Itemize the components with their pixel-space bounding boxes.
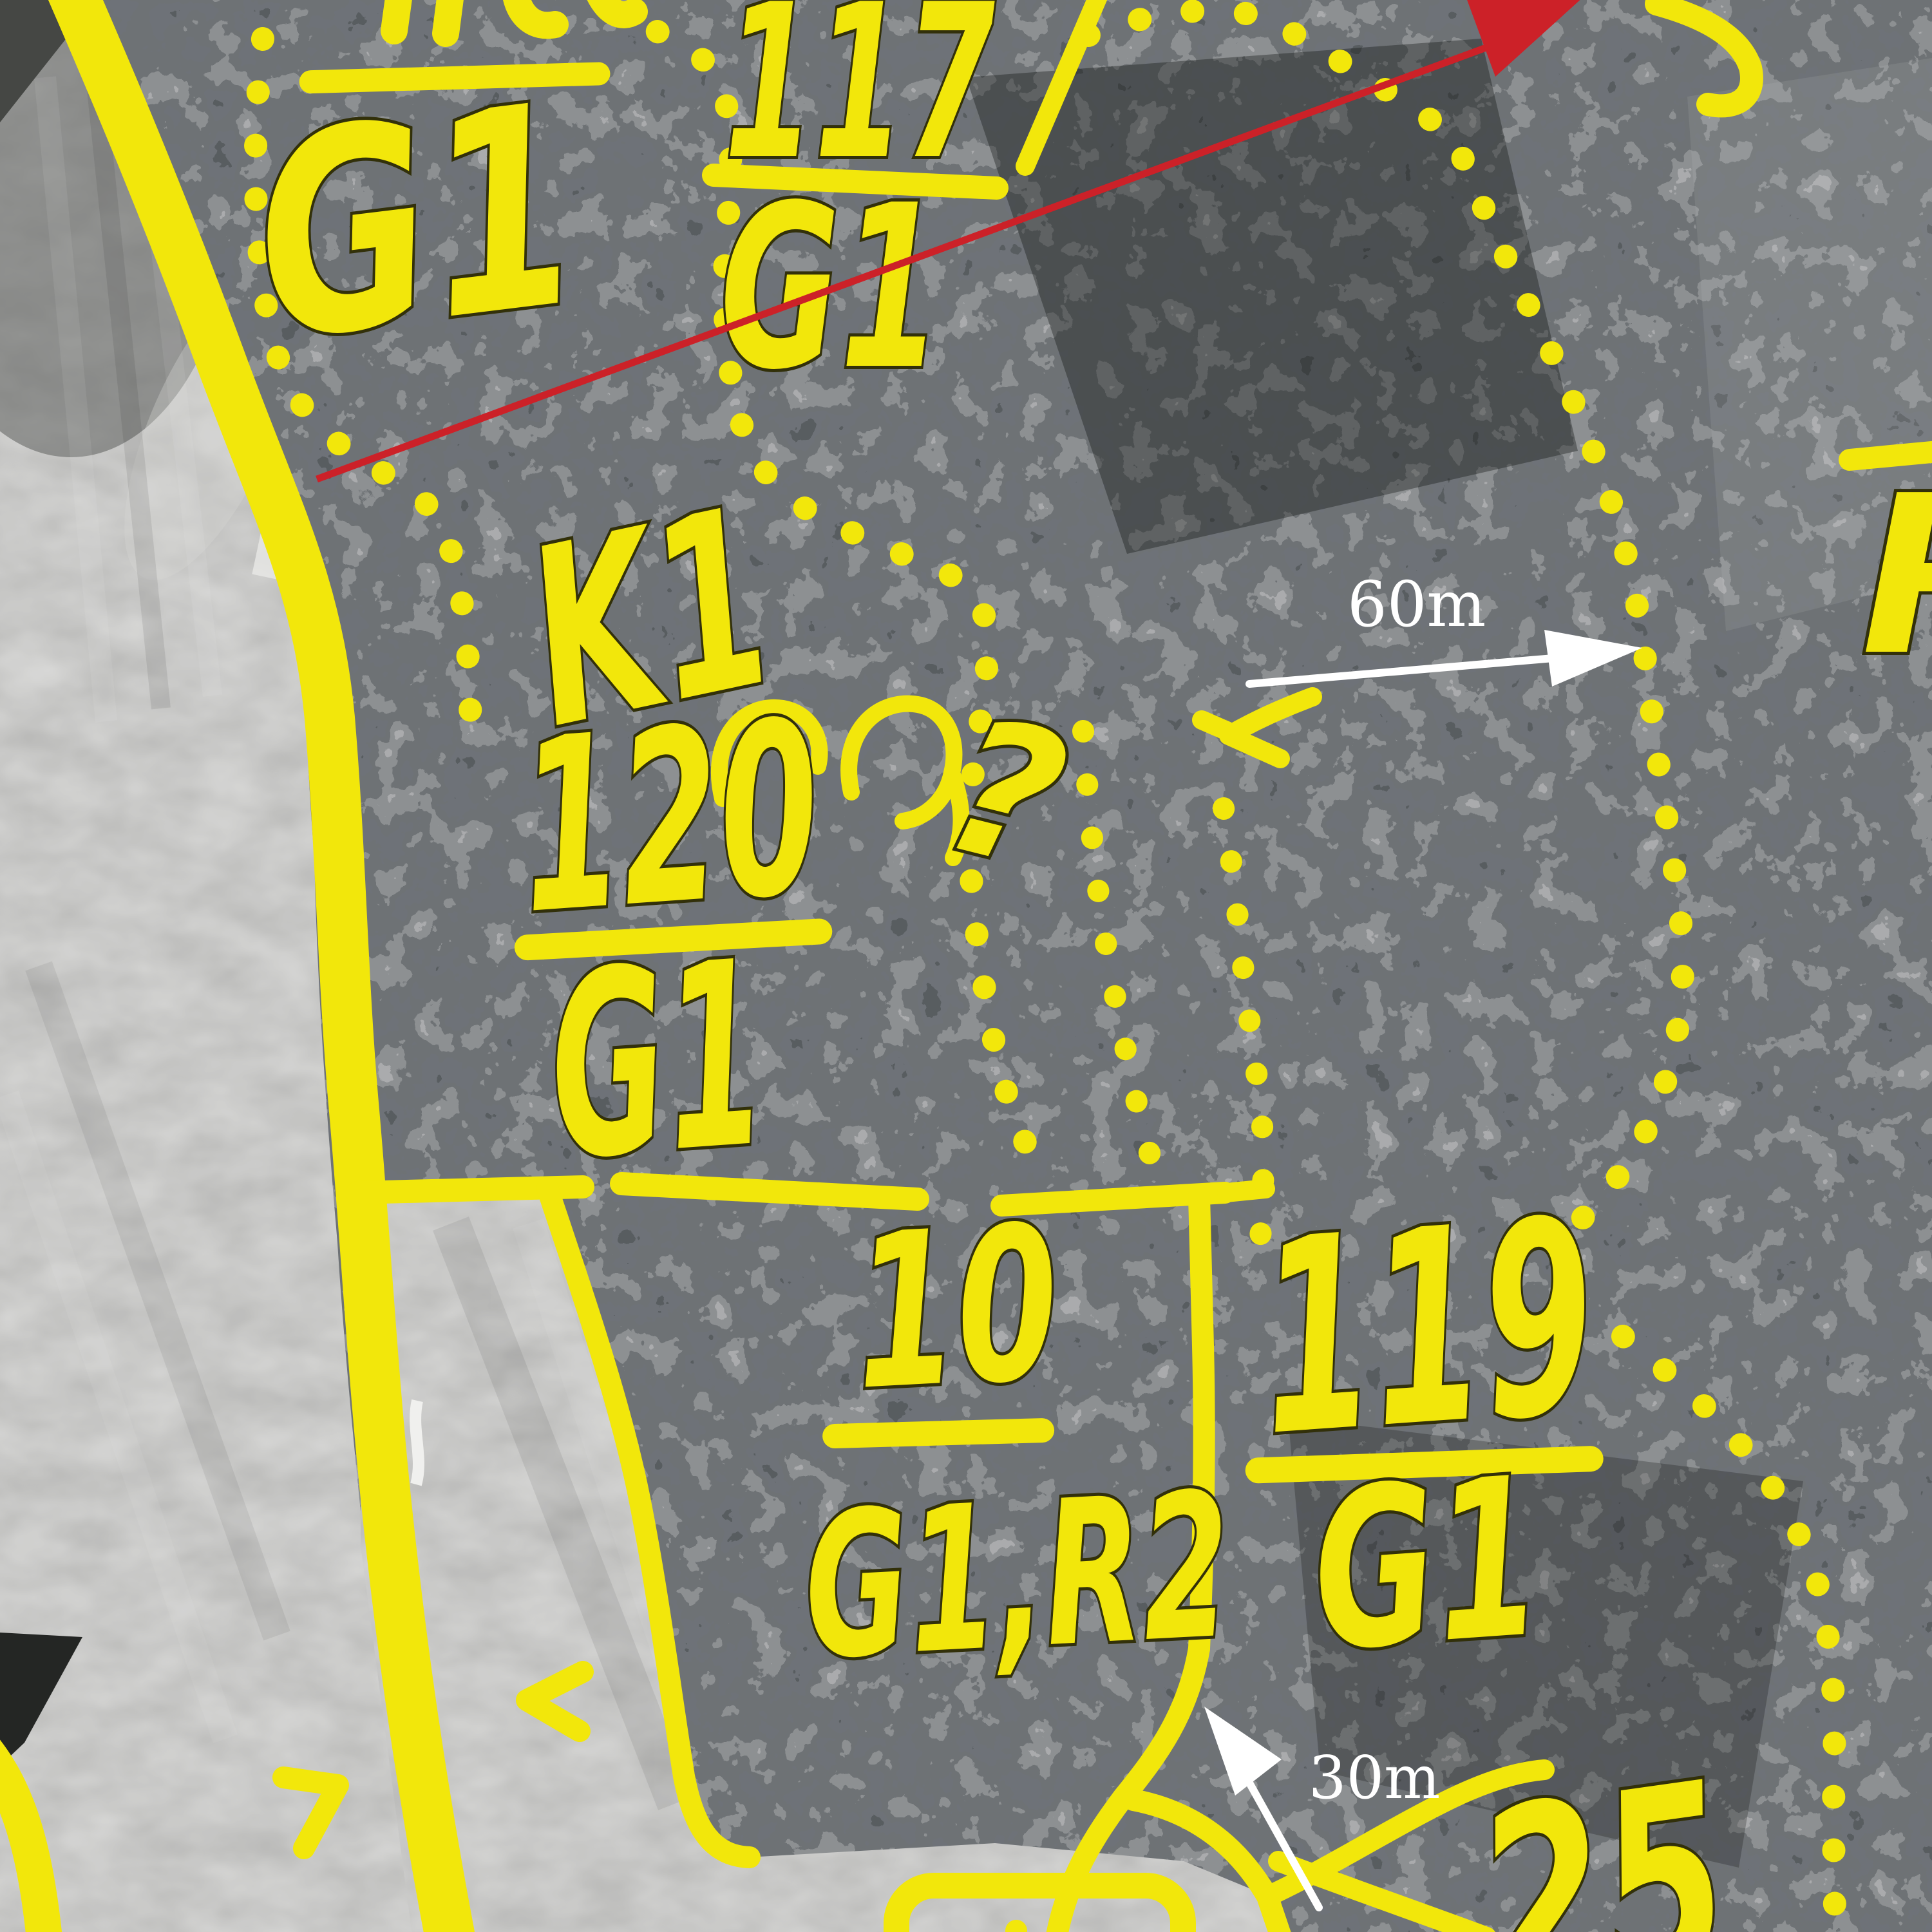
label-right-edge-denominator: R (1861, 449, 1932, 704)
label-10-denominator: G1,R2 (799, 1450, 1236, 1704)
label-topleft-denominator: G1 (240, 44, 595, 403)
label-120-denominator: G1 (541, 907, 773, 1217)
white-ground-mark (415, 1401, 419, 1484)
aerial-map-screenshot: G1 117 G1 K1 ? 120 G1 10 G1,R2 119 G1 (0, 0, 1932, 1932)
forestry-map-canvas: G1 117 G1 K1 ? 120 G1 10 G1,R2 119 G1 (0, 0, 1932, 1932)
label-25: 25 (1462, 1728, 1746, 1932)
label-119-denominator: G1 (1305, 1430, 1548, 1700)
fraction-bar (835, 1425, 1042, 1441)
label-right-edge: R (1850, 449, 1932, 704)
label-10-numerator: 10 (849, 1180, 1065, 1437)
measurement-60m-label: 60m (1347, 568, 1486, 641)
measurement-30m-label: 30m (1309, 1743, 1440, 1812)
